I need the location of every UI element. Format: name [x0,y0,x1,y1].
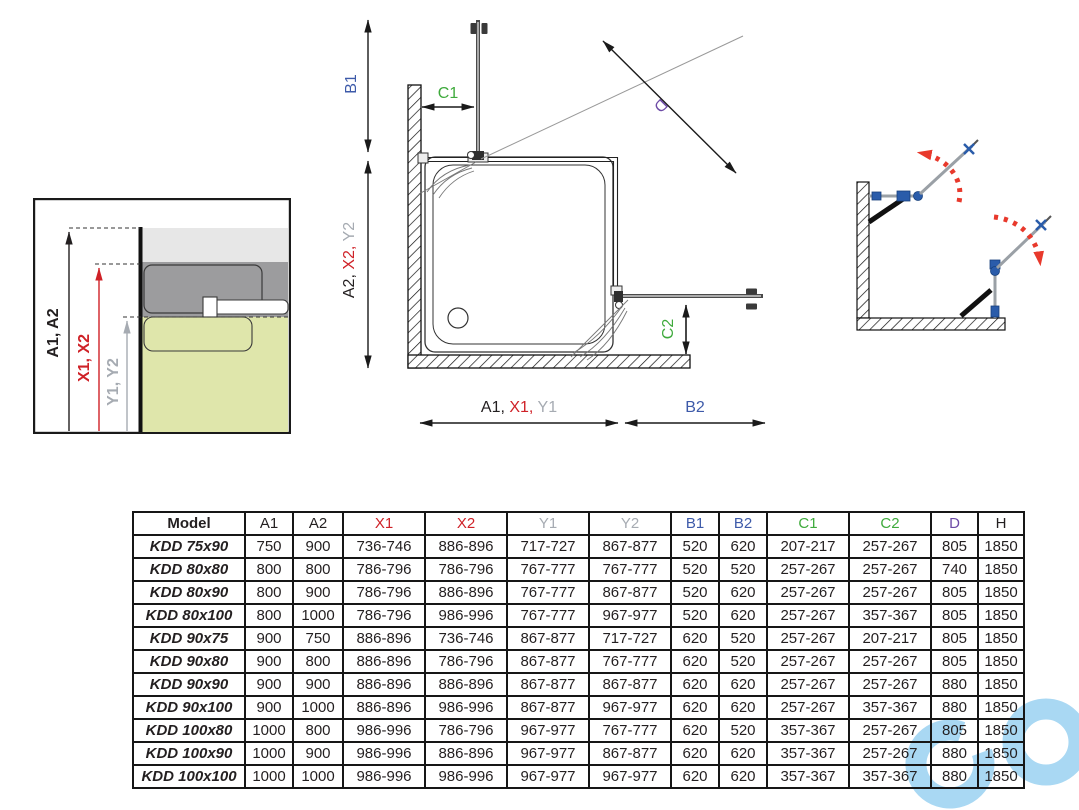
model-cell: KDD 90x80 [133,650,245,673]
value-cell: 805 [931,604,978,627]
slot-clamp [203,297,217,317]
value-cell: 620 [719,604,767,627]
value-cell: 800 [293,650,343,673]
col-header-y1: Y1 [507,512,589,535]
value-cell: 1000 [245,719,293,742]
model-cell: KDD 80x80 [133,558,245,581]
value-cell: 967-977 [589,696,671,719]
value-cell: 800 [245,604,293,627]
value-cell: 1000 [245,765,293,788]
value-cell: 767-777 [589,719,671,742]
value-cell: 740 [931,558,978,581]
dimension-label-a1x1y1: A1, X1, Y1 [481,399,557,416]
value-cell: 967-977 [507,742,589,765]
value-cell: 867-877 [589,581,671,604]
value-cell: 750 [245,535,293,558]
value-cell: 257-267 [767,673,849,696]
table-row: KDD 100x10010001000986-996986-996967-977… [133,765,1024,788]
value-cell: 257-267 [767,604,849,627]
door-left-open [468,20,488,160]
door-handle-icon [471,23,477,34]
dimension-label-b1: B1 [343,74,360,94]
value-cell: 886-896 [343,673,425,696]
value-cell: 717-727 [507,535,589,558]
value-cell: 357-367 [767,742,849,765]
col-header-model: Model [133,512,245,535]
value-cell: 800 [245,558,293,581]
value-cell: 257-267 [849,650,931,673]
col-header-a1: A1 [245,512,293,535]
value-cell: 900 [293,673,343,696]
table-row: KDD 100x801000800986-996786-796967-97776… [133,719,1024,742]
wall-band [142,228,288,262]
value-cell: 357-367 [767,719,849,742]
value-cell: 886-896 [425,535,507,558]
value-cell: 520 [719,558,767,581]
value-cell: 257-267 [767,696,849,719]
value-cell: 986-996 [425,765,507,788]
value-cell: 867-877 [589,535,671,558]
swing-door-bottom [961,216,1051,318]
value-cell: 786-796 [425,650,507,673]
value-cell: 886-896 [425,673,507,696]
col-header-c2: C2 [849,512,931,535]
model-cell: KDD 100x90 [133,742,245,765]
value-cell: 357-367 [849,696,931,719]
value-cell: 1000 [293,604,343,627]
value-cell: 767-777 [507,581,589,604]
value-cell: 620 [671,696,719,719]
value-cell: 867-877 [589,673,671,696]
value-cell: 736-746 [425,627,507,650]
wall-bracket [418,153,428,163]
value-cell: 900 [245,673,293,696]
value-cell: 257-267 [849,719,931,742]
fixed-panel [961,290,991,316]
dimension-label-d: D [650,95,670,115]
value-cell: 257-267 [767,627,849,650]
schematic-wall [857,182,869,318]
value-cell: 900 [293,581,343,604]
door-handle-icon [746,289,757,295]
value-cell: 1850 [978,719,1024,742]
value-cell: 257-267 [849,535,931,558]
wall-left [408,85,421,368]
plan-view-diagram: B1 A2, X2, Y2 C1 D C2 A1, X1, Y1 B2 [340,8,792,440]
value-cell: 786-796 [343,558,425,581]
value-cell: 867-877 [589,742,671,765]
col-header-b1: B1 [671,512,719,535]
schematic-floor [857,318,1005,330]
value-cell: 520 [719,719,767,742]
value-cell: 1850 [978,558,1024,581]
value-cell: 805 [931,719,978,742]
table-row: KDD 80x90800900786-796886-896767-777867-… [133,581,1024,604]
dimension-label-c1: C1 [438,85,459,102]
table-row: KDD 80x1008001000786-796986-996767-77796… [133,604,1024,627]
model-cell: KDD 90x75 [133,627,245,650]
value-cell: 967-977 [507,719,589,742]
value-cell: 986-996 [425,604,507,627]
value-cell: 880 [931,673,978,696]
value-cell: 900 [245,627,293,650]
door-swing-diagram [845,110,1079,340]
model-cell: KDD 75x90 [133,535,245,558]
value-cell: 886-896 [343,627,425,650]
door-hinge-right [614,291,623,302]
value-cell: 886-896 [343,696,425,719]
col-header-a2: A2 [293,512,343,535]
value-cell: 900 [293,535,343,558]
col-header-x1: X1 [343,512,425,535]
model-cell: KDD 100x80 [133,719,245,742]
table-row: KDD 100x901000900986-996886-896967-97786… [133,742,1024,765]
value-cell: 1000 [245,742,293,765]
value-cell: 620 [671,650,719,673]
dimension-label-y1y2: Y1, Y2 [105,358,122,406]
value-cell: 886-896 [343,650,425,673]
value-cell: 767-777 [507,604,589,627]
value-cell: 257-267 [767,581,849,604]
dimension-label-x1x2: X1, X2 [76,334,93,382]
value-cell: 620 [671,765,719,788]
value-cell: 800 [293,558,343,581]
value-cell: 786-796 [343,581,425,604]
model-cell: KDD 90x100 [133,696,245,719]
axis-part: Y2 [341,222,358,242]
value-cell: 986-996 [343,719,425,742]
model-cell: KDD 80x100 [133,604,245,627]
model-cell: KDD 90x90 [133,673,245,696]
value-cell: 257-267 [767,558,849,581]
value-cell: 986-996 [343,765,425,788]
value-cell: 800 [245,581,293,604]
value-cell: 1850 [978,696,1024,719]
value-cell: 867-877 [507,627,589,650]
table-row: KDD 90x75900750886-896736-746867-877717-… [133,627,1024,650]
col-header-x2: X2 [425,512,507,535]
value-cell: 257-267 [849,742,931,765]
axis-part: A2, [341,270,358,298]
value-cell: 880 [931,742,978,765]
table-row: KDD 75x90750900736-746886-896717-727867-… [133,535,1024,558]
value-cell: 880 [931,696,978,719]
wall-bottom [408,355,690,368]
value-cell: 1000 [293,765,343,788]
value-cell: 800 [293,719,343,742]
value-cell: 520 [671,558,719,581]
model-cell: KDD 80x90 [133,581,245,604]
value-cell: 767-777 [589,650,671,673]
glass-slot [211,300,288,314]
spec-sheet: A1, A2 X1, X2 Y1, Y2 [0,0,1079,810]
axis-part: A1, [481,399,509,416]
value-cell: 1850 [978,581,1024,604]
value-cell: 867-877 [507,696,589,719]
drain [448,308,468,328]
value-cell: 786-796 [425,558,507,581]
spec-table: ModelA1A2X1X2Y1Y2B1B2C1C2DH KDD 75x90750… [132,511,1025,789]
value-cell: 620 [719,581,767,604]
value-cell: 805 [931,627,978,650]
value-cell: 620 [719,696,767,719]
spec-table-body: KDD 75x90750900736-746886-896717-727867-… [133,535,1024,788]
value-cell: 880 [931,765,978,788]
glass-band [142,317,288,432]
value-cell: 520 [671,535,719,558]
value-cell: 805 [931,535,978,558]
dimension-label-a2x2y2: A2, X2, Y2 [341,222,358,298]
value-cell: 357-367 [767,765,849,788]
value-cell: 1850 [978,742,1024,765]
col-header-d: D [931,512,978,535]
value-cell: 357-367 [849,765,931,788]
spec-table-head-row: ModelA1A2X1X2Y1Y2B1B2C1C2DH [133,512,1024,535]
table-row: KDD 90x80900800886-896786-796867-877767-… [133,650,1024,673]
dimension-label-c2: C2 [660,319,677,340]
col-header-h: H [978,512,1024,535]
value-cell: 207-217 [767,535,849,558]
value-cell: 1850 [978,650,1024,673]
value-cell: 767-777 [507,558,589,581]
swing-arrow-left [921,153,960,202]
value-cell: 805 [931,650,978,673]
value-cell: 1850 [978,604,1024,627]
value-cell: 257-267 [849,673,931,696]
value-cell: 717-727 [589,627,671,650]
value-cell: 520 [719,627,767,650]
swing-door-top [869,140,978,222]
value-cell: 520 [671,581,719,604]
value-cell: 786-796 [425,719,507,742]
value-cell: 867-877 [507,673,589,696]
col-header-c1: C1 [767,512,849,535]
fixed-panel [869,199,903,222]
value-cell: 1850 [978,673,1024,696]
col-header-y2: Y2 [589,512,671,535]
value-cell: 620 [671,719,719,742]
axis-part: X2, [341,241,358,269]
value-cell: 736-746 [343,535,425,558]
table-row: KDD 90x1009001000886-896986-996867-87796… [133,696,1024,719]
value-cell: 620 [719,535,767,558]
value-cell: 886-896 [425,742,507,765]
value-cell: 620 [719,673,767,696]
value-cell: 207-217 [849,627,931,650]
value-cell: 257-267 [767,650,849,673]
value-cell: 357-367 [849,604,931,627]
model-cell: KDD 100x100 [133,765,245,788]
value-cell: 967-977 [589,765,671,788]
value-cell: 900 [293,742,343,765]
value-cell: 786-796 [343,604,425,627]
value-cell: 620 [671,742,719,765]
col-header-b2: B2 [719,512,767,535]
dimension-label-b2: B2 [685,399,705,416]
value-cell: 750 [293,627,343,650]
dimension-label-a1a2: A1, A2 [45,308,62,357]
value-cell: 900 [245,650,293,673]
value-cell: 620 [719,742,767,765]
value-cell: 986-996 [425,696,507,719]
door-right-open [614,289,763,310]
value-cell: 1000 [293,696,343,719]
value-cell: 967-977 [589,604,671,627]
value-cell: 1850 [978,627,1024,650]
value-cell: 967-977 [507,765,589,788]
value-cell: 1850 [978,765,1024,788]
value-cell: 1850 [978,535,1024,558]
value-cell: 257-267 [849,558,931,581]
table-row: KDD 90x90900900886-896886-896867-877867-… [133,673,1024,696]
value-cell: 520 [671,604,719,627]
value-cell: 886-896 [425,581,507,604]
value-cell: 986-996 [343,742,425,765]
value-cell: 620 [671,673,719,696]
table-row: KDD 80x80800800786-796786-796767-777767-… [133,558,1024,581]
value-cell: 867-877 [507,650,589,673]
profile-detail-diagram: A1, A2 X1, X2 Y1, Y2 [33,198,291,434]
axis-part: X1, [509,399,537,416]
value-cell: 620 [719,765,767,788]
value-cell: 900 [245,696,293,719]
value-cell: 805 [931,581,978,604]
axis-part: Y1 [538,399,558,416]
value-cell: 257-267 [849,581,931,604]
value-cell: 620 [671,627,719,650]
value-cell: 767-777 [589,558,671,581]
swing-arrow-down [994,217,1040,262]
value-cell: 520 [719,650,767,673]
